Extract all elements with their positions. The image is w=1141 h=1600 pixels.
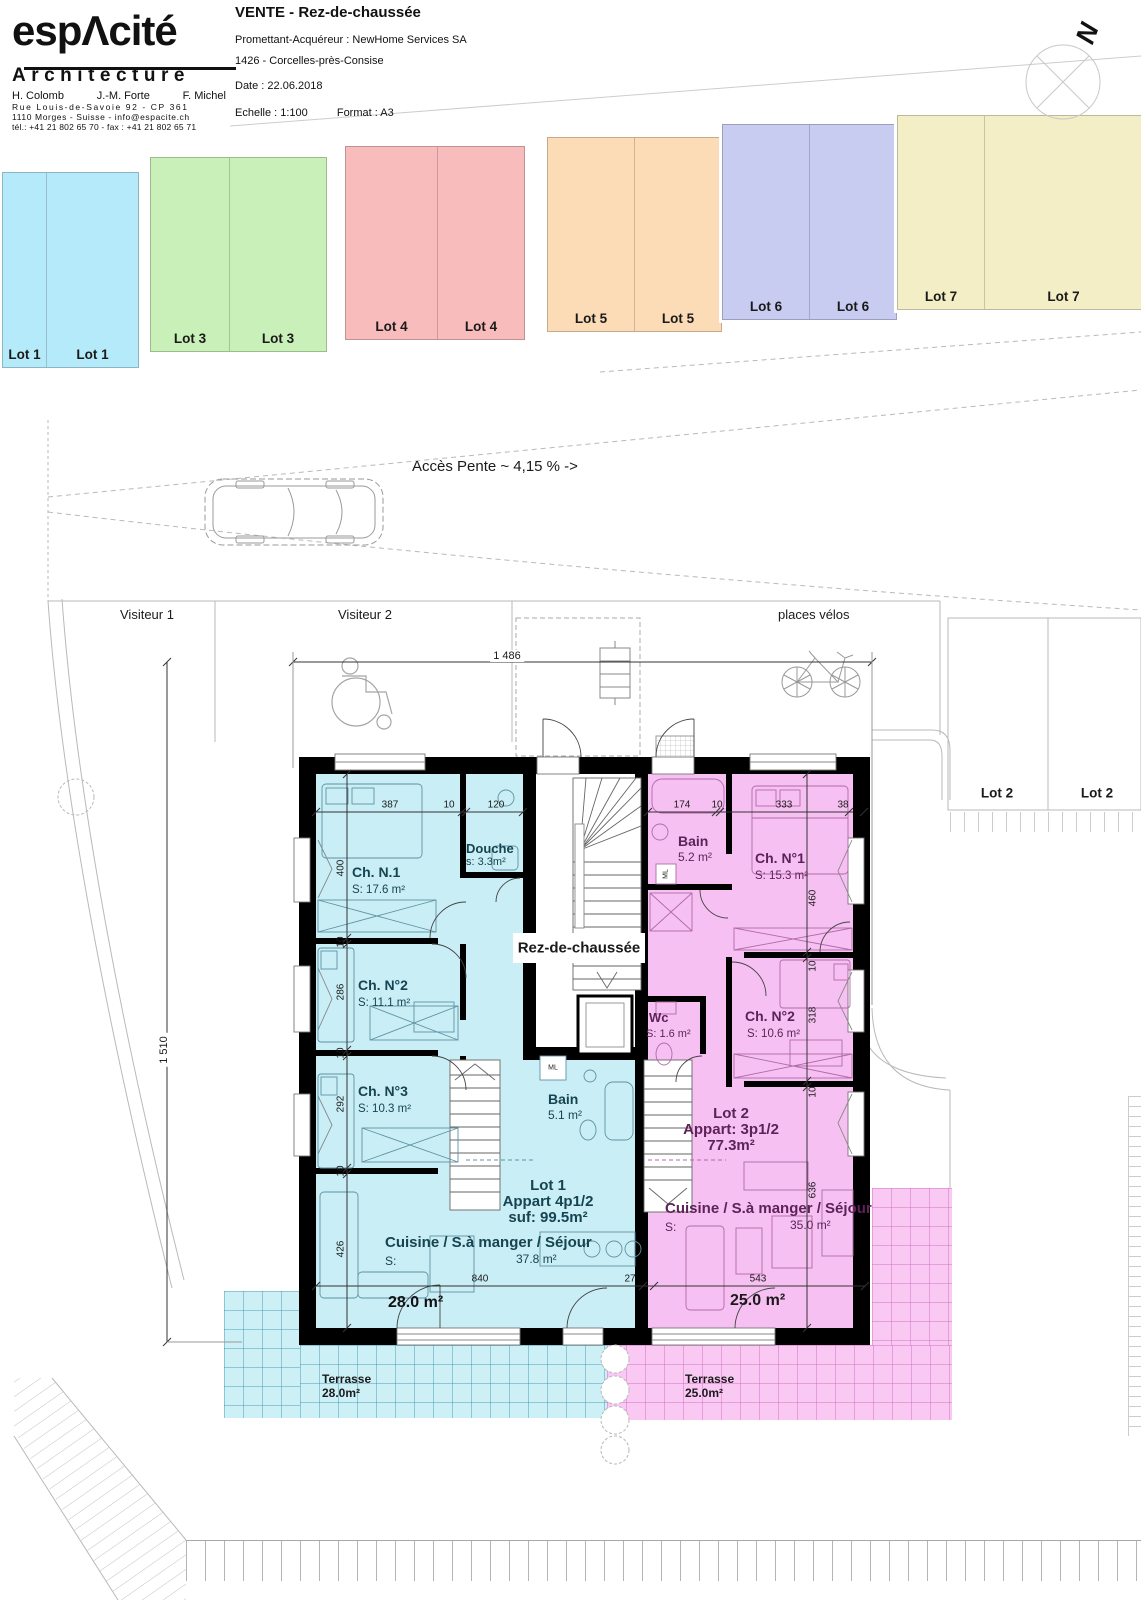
dim-lot1-bottom-0: 840 (472, 1274, 489, 1285)
overall-depth-dim: 1 510 (158, 1033, 170, 1067)
client-line: Promettant-Acquéreur : NewHome Services … (235, 34, 467, 46)
partners: H. Colomb J.-M. Forte F. Michel (12, 90, 226, 102)
lot2-parking-label-left: Lot 2 (981, 786, 1013, 801)
lot2-parking-label-right: Lot 2 (1081, 786, 1113, 801)
parking-cell: Lot 1 (46, 173, 138, 367)
north-arrow-icon (1026, 45, 1100, 119)
dim-lot1-left-3: 10 (336, 1047, 347, 1058)
room-label-lot2-wc: Wc (649, 1010, 669, 1025)
dim-lot1-left-2: 286 (336, 984, 347, 1001)
parking-label: Lot 5 (548, 311, 634, 326)
lot2-living-label: Cuisine / S.à manger / Séjour (665, 1200, 872, 1217)
lot1-living-s: S: (385, 1254, 396, 1268)
floor-label: Rez-de-chaussée (518, 940, 641, 957)
boundary-fence-hatching (186, 1540, 1141, 1581)
lot1-unit-label: Lot 1 Appart 4p1/2 suf: 99.5m² (488, 1178, 608, 1225)
letterhead: espΛcité Architecture H. Colomb J.-M. Fo… (12, 10, 226, 132)
room-area-lot2-bath: 5.2 m² (678, 850, 712, 864)
dim-lot2-top-1: 10 (711, 800, 722, 811)
dim-lot1-top-2: 120 (488, 800, 505, 811)
lot1-unit-line1: Lot 1 (488, 1178, 608, 1194)
room-label-lot1-bedroom2: Ch. N°2 (358, 977, 408, 993)
parking-label: Lot 4 (346, 319, 437, 334)
dim-lot2-right-1: 10 (808, 960, 819, 971)
parking-cell: Lot 6 (809, 125, 896, 319)
project-line: 1426 - Corcelles-près-Consise (235, 55, 467, 67)
room-area-lot1-bedroom3: S: 10.3 m² (358, 1103, 411, 1115)
lot2-living-s: S: (665, 1220, 676, 1234)
format: Format : A3 (337, 107, 394, 119)
room-area-lot2-wc: S: 1.6 m² (646, 1028, 691, 1040)
bike-area-label: places vélos (778, 607, 850, 622)
visitor2-label: Visiteur 2 (338, 607, 392, 622)
parking-label: Lot 5 (635, 311, 721, 326)
dim-lot1-top-0: 387 (382, 800, 399, 811)
lot1-unit-line2: Appart 4p1/2 (488, 1194, 608, 1210)
dim-lot1-left-4: 292 (336, 1096, 347, 1113)
parking-cell: Lot 7 (984, 116, 1141, 309)
lot2-terrace-fill-2 (607, 1345, 952, 1420)
dim-lot2-bottom-0: 543 (750, 1274, 767, 1285)
room-label-lot1-bath: Bain (548, 1091, 578, 1107)
parking-label: Lot 4 (438, 319, 524, 334)
lot2-terrace-label: Terrasse (685, 1372, 734, 1386)
lot2-terrace-area: 25.0m² (685, 1386, 723, 1400)
partner-1: H. Colomb (12, 90, 64, 102)
parking-strip-lot6: Lot 6 Lot 6 (722, 124, 897, 320)
lot1-unit-line3: suf: 99.5m² (488, 1210, 608, 1226)
lot2-unit-line3: 77.3m² (671, 1138, 791, 1154)
lot2-unit-label: Lot 2 Appart: 3p1/2 77.3m² (671, 1106, 791, 1153)
room-area-lot1-shower: s: 3.3m² (466, 856, 506, 868)
car-icon (205, 479, 383, 545)
room-area-lot1-bedroom1: S: 17.6 m² (352, 884, 405, 896)
parking-cell: Lot 7 (898, 116, 984, 309)
parking-label: Lot 1 (47, 347, 138, 362)
parking-label: Lot 3 (230, 331, 326, 346)
date-line: Date : 22.06.2018 (235, 80, 467, 92)
dim-lot2-top-3: 38 (837, 800, 848, 811)
parking-cell: Lot 3 (229, 158, 326, 351)
parking-label: Lot 7 (985, 289, 1141, 304)
partner-3: F. Michel (183, 90, 226, 102)
dim-lot1-left-5: 10 (336, 1165, 347, 1176)
dim-lot1-left-0: 400 (336, 860, 347, 877)
parking-curb-hatching (950, 812, 1141, 832)
address-line-3: tél.: +41 21 802 65 70 - fax : +41 21 80… (12, 122, 226, 132)
parking-label: Lot 1 (3, 347, 46, 362)
dim-lot1-left-1: 10 (336, 936, 347, 947)
lot2-living-area: 35.0 m² (790, 1218, 831, 1232)
entrance-porch (516, 618, 694, 760)
title-block: VENTE - Rez-de-chaussée Promettant-Acqué… (235, 4, 467, 119)
brand-rule (24, 67, 236, 70)
lot2-unit-line1: Lot 2 (671, 1106, 791, 1122)
parking-cell: Lot 4 (346, 147, 437, 339)
parking-label: Lot 6 (723, 299, 809, 314)
visitor1-label: Visiteur 1 (120, 607, 174, 622)
lot1-terrace-area: 28.0m² (322, 1386, 360, 1400)
dim-lot2-right-3: 10 (808, 1086, 819, 1097)
room-area-lot2-bedroom1: S: 15.3 m² (755, 870, 808, 882)
parking-cell: Lot 5 (634, 138, 721, 331)
dim-lot2-right-0: 460 (808, 890, 819, 907)
parking-cell: Lot 1 (3, 173, 46, 367)
dim-lot1-left-6: 426 (336, 1241, 347, 1258)
room-label-lot1-shower: Douche (466, 841, 514, 856)
parking-cell: Lot 4 (437, 147, 524, 339)
floor-plan-sheet: espΛcité Architecture H. Colomb J.-M. Fo… (0, 0, 1141, 1600)
dim-lot2-right-4: 636 (808, 1182, 819, 1199)
parking-strip-lot5: Lot 5 Lot 5 (547, 137, 722, 332)
dim-lot1-bottom-1: 27 (624, 1274, 635, 1285)
sheet-title: VENTE - Rez-de-chaussée (235, 4, 467, 21)
bicycle-icon (782, 651, 860, 697)
parking-strip-lot1: Lot 1 Lot 1 (2, 172, 139, 368)
dim-lot2-right-2: 318 (808, 1007, 819, 1024)
parking-cell: Lot 3 (151, 158, 229, 351)
access-slope-label: Accès Pente ~ 4,15 % -> (412, 458, 578, 475)
lot2-unit-line2: Appart: 3p1/2 (671, 1122, 791, 1138)
room-area-lot1-bath: 5.1 m² (548, 1108, 582, 1122)
wheelchair-icon (332, 658, 392, 729)
room-label-lot2-bath: Bain (678, 833, 708, 849)
dim-lot2-top-2: 333 (776, 800, 793, 811)
ml-label-lot2: ML (663, 869, 670, 879)
north-label: N (1070, 19, 1106, 48)
room-label-lot1-bedroom1: Ch. N.1 (352, 864, 400, 880)
parking-label: Lot 7 (898, 289, 984, 304)
lot1-living-area: 37.8 m² (516, 1252, 557, 1266)
parking-cell: Lot 6 (723, 125, 809, 319)
parking-label: Lot 3 (151, 331, 229, 346)
parking-strip-lot3: Lot 3 Lot 3 (150, 157, 327, 352)
parking-strip-lot4: Lot 4 Lot 4 (345, 146, 525, 340)
parking-cell: Lot 5 (548, 138, 634, 331)
stairwell-core-fill (536, 774, 635, 1047)
room-label-lot1-bedroom3: Ch. N°3 (358, 1083, 408, 1099)
dim-lot2-top-0: 174 (674, 800, 691, 811)
address-line-2: 1110 Morges - Suisse - info@espacite.ch (12, 112, 226, 122)
dim-lot1-top-1: 10 (443, 800, 454, 811)
parking-label: Lot 6 (810, 299, 896, 314)
lot1-living-label: Cuisine / S.à manger / Séjour (385, 1234, 592, 1251)
scale-format-line: Echelle : 1:100 Format : A3 (235, 107, 467, 119)
right-edge-hatching (1128, 1096, 1141, 1436)
partner-2: J.-M. Forte (97, 90, 150, 102)
room-area-lot1-bedroom2: S: 11.1 m² (358, 997, 410, 1009)
lot1-terrace-label: Terrasse (322, 1372, 371, 1386)
room-label-lot2-bedroom2: Ch. N°2 (745, 1008, 795, 1024)
lot2-living-size: 25.0 m² (730, 1292, 785, 1310)
lot1-living-size: 28.0 m² (388, 1294, 443, 1312)
overall-width-dim: 1 486 (490, 650, 524, 662)
room-area-lot2-bedroom2: S: 10.6 m² (747, 1028, 800, 1040)
parking-strip-lot7: Lot 7 Lot 7 (897, 115, 1141, 310)
lot1-terrace-fill (224, 1291, 300, 1418)
brand-logo: espΛcité (12, 10, 226, 52)
scale: Echelle : 1:100 (235, 107, 308, 119)
ml-label-lot1: ML (548, 1065, 558, 1072)
address-line-1: Rue Louis-de-Savoie 92 - CP 361 (12, 102, 226, 112)
room-label-lot2-bedroom1: Ch. N°1 (755, 850, 805, 866)
